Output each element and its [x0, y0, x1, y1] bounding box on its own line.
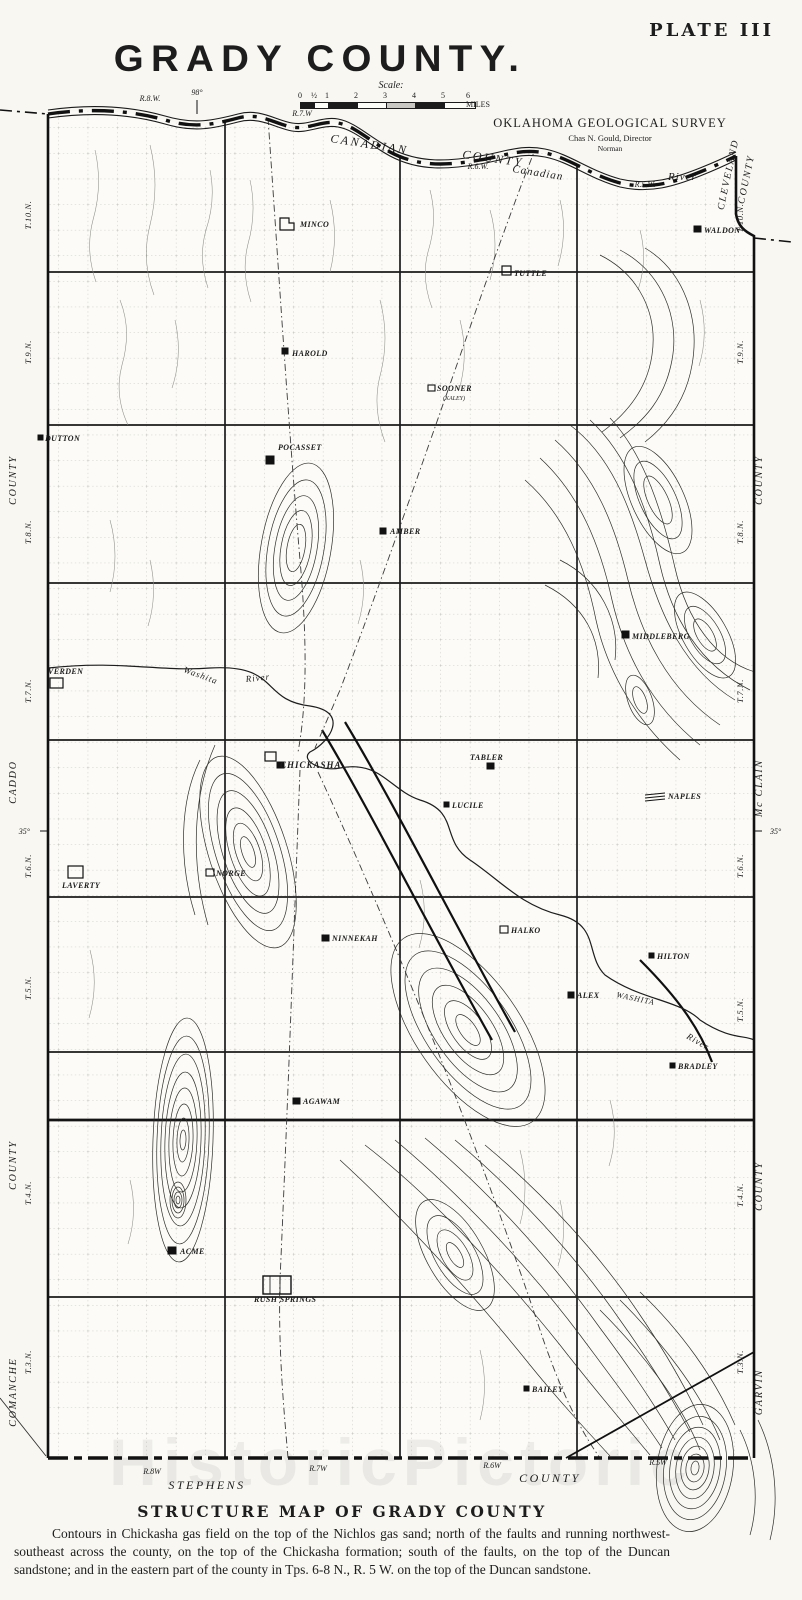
range-label-bottom: R.6W: [482, 1461, 502, 1470]
township-label-left: T.3.N.: [23, 1350, 33, 1374]
town-label: AMBER: [389, 527, 421, 536]
town-label: CHICKASHA: [280, 760, 342, 770]
township-label-left: T.5.N.: [23, 976, 33, 1000]
town-label: BAILEY: [531, 1385, 564, 1394]
town-label: TUTTLE: [514, 269, 547, 278]
township-label-right: T.7.N.: [735, 679, 745, 703]
town-note: (KALEY): [443, 395, 465, 402]
town-label: RUSH SPRINGS: [253, 1295, 317, 1304]
town-label: SOONER: [437, 384, 472, 393]
town-label: HALKO: [510, 926, 541, 935]
township-label-left: T.7.N.: [23, 679, 33, 703]
county-label-left: COUNTY: [8, 455, 19, 505]
town-label: VERDEN: [48, 667, 84, 676]
town-label: HAROLD: [291, 349, 328, 358]
county-label-right: Mc CLAIN: [754, 759, 765, 818]
town-label: NINNEKAH: [331, 934, 378, 943]
town-label: POCASSET: [278, 443, 322, 452]
township-label-left: T.6.N.: [23, 854, 33, 878]
township-label-left: T.8.N.: [23, 520, 33, 544]
county-label-left: CADDO: [8, 760, 19, 803]
latitude-label-right: 35°: [769, 827, 782, 836]
section-grid: [48, 108, 756, 1460]
map-interior: [0, 100, 802, 1470]
town-label: AGAWAM: [302, 1097, 341, 1106]
county-label-right: COUNTY: [754, 455, 765, 505]
township-label-right: T.3.N.: [735, 1350, 745, 1374]
town-label: ALEX: [576, 991, 600, 1000]
county-label-left: COMANCHE: [8, 1357, 19, 1426]
township-label-right: T.6.N.: [735, 854, 745, 878]
town-label: NAPLES: [667, 792, 701, 801]
county-label-right: GARVIN: [754, 1369, 765, 1415]
range-label-bottom: R.5W: [648, 1458, 668, 1467]
range-label-bottom: R.7W: [308, 1464, 328, 1473]
town-label: NORGE: [215, 869, 246, 878]
town-label: MINCO: [299, 220, 329, 229]
county-label-left: COUNTY: [8, 1140, 19, 1190]
county-label-bottom: STEPHENS: [168, 1478, 245, 1492]
town-label: LUCILE: [451, 801, 484, 810]
township-label-left: T.10.N.: [23, 201, 33, 230]
town-label: DUTTON: [44, 434, 81, 443]
town-label: TABLER: [470, 753, 503, 762]
range-label-top: R.8.W.: [139, 94, 161, 103]
town-label: LAVERTY: [61, 881, 101, 890]
township-label-right: T.4.N.: [735, 1183, 745, 1207]
township-label-right: T.8.N.: [735, 520, 745, 544]
township-label-left: T.9.N.: [23, 340, 33, 364]
town-label: HILTON: [656, 952, 691, 961]
range-label-top: R.6.W.: [467, 162, 489, 171]
caption-heading: STRUCTURE MAP OF GRADY COUNTY: [14, 1502, 670, 1521]
county-label-ne: COUNTY: [736, 154, 757, 205]
county-label-bottom: COUNTY: [519, 1471, 581, 1485]
township-label-left: T.4.N.: [23, 1181, 33, 1205]
township-label-right: T.10.N.: [735, 204, 745, 233]
county-map: MINCO WALDON TUTTLE HAROLD SOONER (KALEY…: [0, 0, 802, 1600]
meridian-label: 98°: [191, 88, 203, 97]
caption-body: Contours in Chickasha gas field on the t…: [14, 1525, 670, 1578]
range-label-top: R.5.W.: [634, 180, 656, 189]
river-label: River: [667, 171, 697, 183]
town-label: ACME: [179, 1247, 205, 1256]
latitude-label-left: 35°: [18, 827, 31, 836]
caption-block: STRUCTURE MAP OF GRADY COUNTY Contours i…: [14, 1502, 670, 1578]
township-label-right: T.9.N.: [735, 340, 745, 364]
township-label-right: T.5.N.: [735, 998, 745, 1022]
range-label-top: R.7.W: [291, 109, 313, 118]
range-label-bottom: R.8W: [142, 1467, 162, 1476]
county-label-right: COUNTY: [754, 1161, 765, 1211]
scanned-map-page: PLATE III GRADY COUNTY. Scale: 0 ½ 1 2 3…: [0, 0, 802, 1600]
town-label: BRADLEY: [677, 1062, 718, 1071]
town-label: MIDDLEBERG: [631, 632, 690, 641]
